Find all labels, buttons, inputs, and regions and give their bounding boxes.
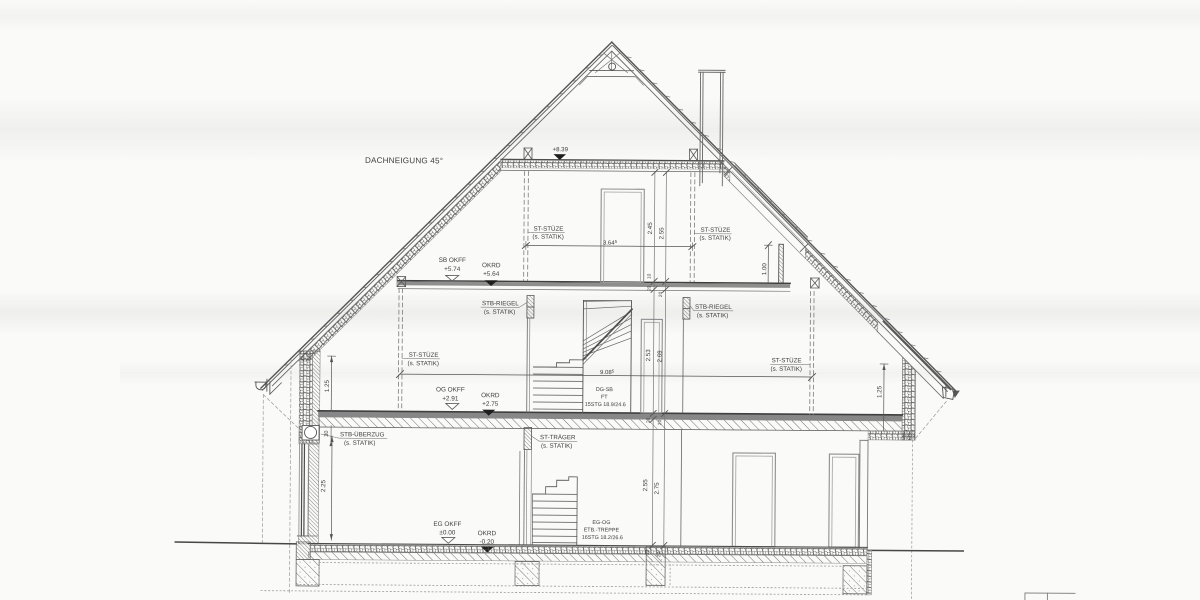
svg-text:2.53: 2.53 [645,349,652,362]
svg-text:ST-TRÄGER: ST-TRÄGER [540,434,576,441]
svg-text:+2.75: +2.75 [482,401,499,408]
svg-text:DG-SB: DG-SB [596,387,614,393]
svg-text:OG OKFF: OG OKFF [436,386,465,393]
svg-text:(s. STATIK): (s. STATIK) [770,366,801,373]
svg-text:ST-STÜZE: ST-STÜZE [772,357,802,364]
svg-text:2.25: 2.25 [320,479,327,492]
svg-text:(s. STATIK): (s. STATIK) [408,360,439,367]
svg-text:20: 20 [647,285,653,291]
svg-text:1.25: 1.25 [324,379,331,392]
svg-text:(s. STATIK): (s. STATIK) [532,234,563,241]
svg-text:(s. STATIK): (s. STATIK) [344,440,375,447]
svg-text:+8.39: +8.39 [553,146,569,153]
svg-text:15STG 18.9/24.6: 15STG 18.9/24.6 [585,402,626,408]
svg-text:+2.91: +2.91 [442,395,459,402]
svg-text:2.75: 2.75 [654,482,661,495]
svg-text:20: 20 [646,417,652,423]
svg-text:SB OKFF: SB OKFF [439,257,466,264]
svg-text:2.69: 2.69 [657,350,664,363]
svg-text:STB-ÜBERZUG: STB-ÜBERZUG [340,431,385,438]
svg-text:(s. STATIK): (s. STATIK) [484,309,515,316]
svg-text:ST-STÜZE: ST-STÜZE [700,227,730,234]
svg-text:1.25: 1.25 [876,385,883,398]
svg-text:10: 10 [647,273,653,279]
svg-text:+5.74: +5.74 [444,266,461,273]
svg-text:(s. STATIK): (s. STATIK) [699,235,730,242]
svg-text:STB-RIEGEL: STB-RIEGEL [482,300,519,307]
svg-text:ST-STÜZE: ST-STÜZE [533,226,563,233]
svg-text:ETB.-TREPPE: ETB.-TREPPE [584,527,620,533]
svg-text:±0.00: ±0.00 [439,529,455,536]
svg-text:FT: FT [601,395,608,401]
svg-text:2.55: 2.55 [658,227,665,240]
svg-text:1.00: 1.00 [761,263,768,276]
svg-text:OKRD: OKRD [482,262,501,269]
svg-text:EG-OG: EG-OG [592,520,610,526]
svg-text:(s. STATIK): (s. STATIK) [697,312,728,319]
svg-text:+5.64: +5.64 [483,271,500,278]
svg-text:ST-STÜZE: ST-STÜZE [409,352,439,359]
svg-text:20: 20 [657,419,663,425]
svg-text:2.55: 2.55 [642,479,649,492]
svg-text:3.645: 3.645 [603,239,618,247]
svg-text:20: 20 [658,291,664,297]
svg-text:OKRD: OKRD [478,530,497,537]
svg-text:16STG 18.2/26.6: 16STG 18.2/26.6 [582,535,623,541]
svg-text:(s. STATIK): (s. STATIK) [541,443,572,450]
svg-text:20: 20 [656,551,662,557]
svg-text:2.45: 2.45 [647,222,654,235]
svg-text:EG OKFF: EG OKFF [433,521,461,528]
svg-text:30: 30 [324,430,330,436]
svg-text:STB-RIEGEL: STB-RIEGEL [695,304,732,311]
svg-text:DACHNEIGUNG 45°: DACHNEIGUNG 45° [365,156,443,166]
svg-text:OKRD: OKRD [481,392,500,399]
svg-text:20: 20 [645,549,651,555]
